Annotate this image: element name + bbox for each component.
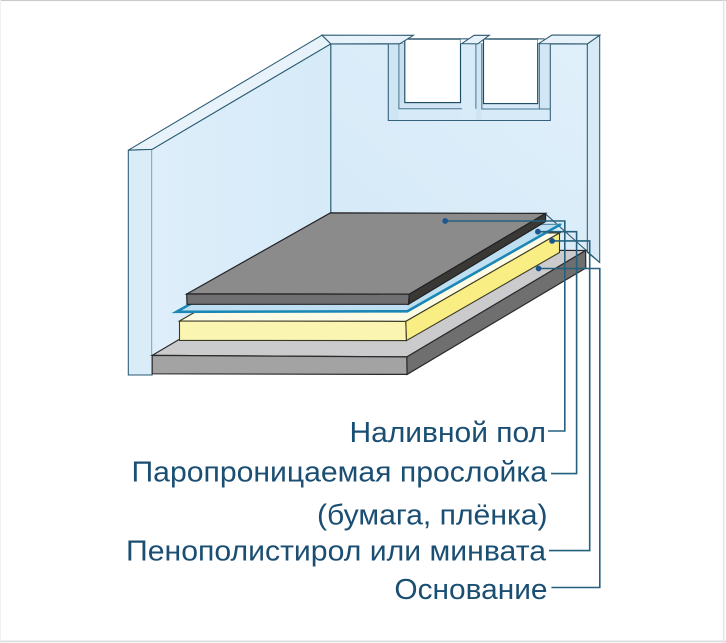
svg-text:(бумага, плёнка): (бумага, плёнка) [317,499,548,531]
svg-text:Основание: Основание [394,574,547,606]
svg-text:Пенополистирол или минвата: Пенополистирол или минвата [126,535,547,567]
svg-text:Паропроницаемая прослойка: Паропроницаемая прослойка [132,457,548,489]
svg-text:Наливной пол: Наливной пол [350,417,547,449]
